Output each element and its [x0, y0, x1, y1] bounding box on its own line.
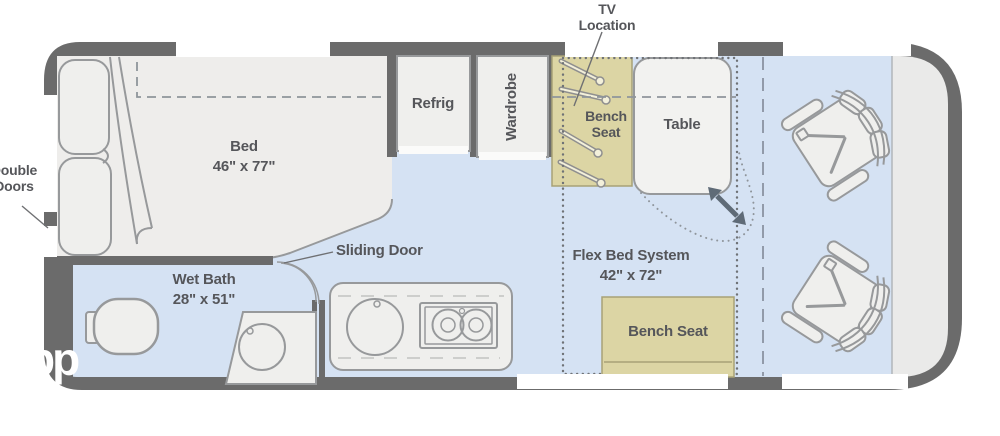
bench-seat-bottom-label: Bench Seat [628, 324, 708, 340]
cabinet-divider [387, 56, 397, 157]
window [565, 42, 718, 57]
refrig-label: Refrig [412, 96, 454, 112]
refrigerator-face [399, 146, 468, 154]
rv-floor-plan: TV Location Double Doors Bed 46" x 77" R… [0, 0, 1000, 436]
bed-label: Bed 46" x 77" [213, 137, 275, 177]
floor-plan-drawing [0, 0, 1000, 436]
wet-bath-label: Wet Bath 28" x 51" [172, 270, 235, 310]
pillow-top [59, 60, 109, 154]
pocket-door-wall [319, 300, 325, 377]
tv-location-label: TV Location [579, 1, 636, 33]
wardrobe-face [479, 152, 546, 160]
table-label: Table [663, 117, 700, 133]
window [176, 42, 330, 57]
double-door-opening-top [44, 95, 57, 212]
wardrobe-label: Wardrobe [504, 73, 520, 141]
sliding-door-label: Sliding Door [336, 243, 423, 259]
wet-bath-wall-top [57, 256, 273, 265]
double-door-opening-bottom [44, 226, 57, 257]
bench-seat-top-label: Bench Seat [585, 108, 627, 140]
double-doors-label: Double Doors [0, 162, 37, 194]
cabinet-divider [470, 56, 477, 157]
window [783, 42, 911, 56]
toilet-bowl [94, 299, 158, 354]
flex-bed-label: Flex Bed System 42" x 72" [572, 246, 689, 286]
pillow-bottom [59, 158, 111, 255]
watermark: pp [27, 336, 77, 382]
window [782, 374, 908, 389]
window [517, 374, 728, 389]
